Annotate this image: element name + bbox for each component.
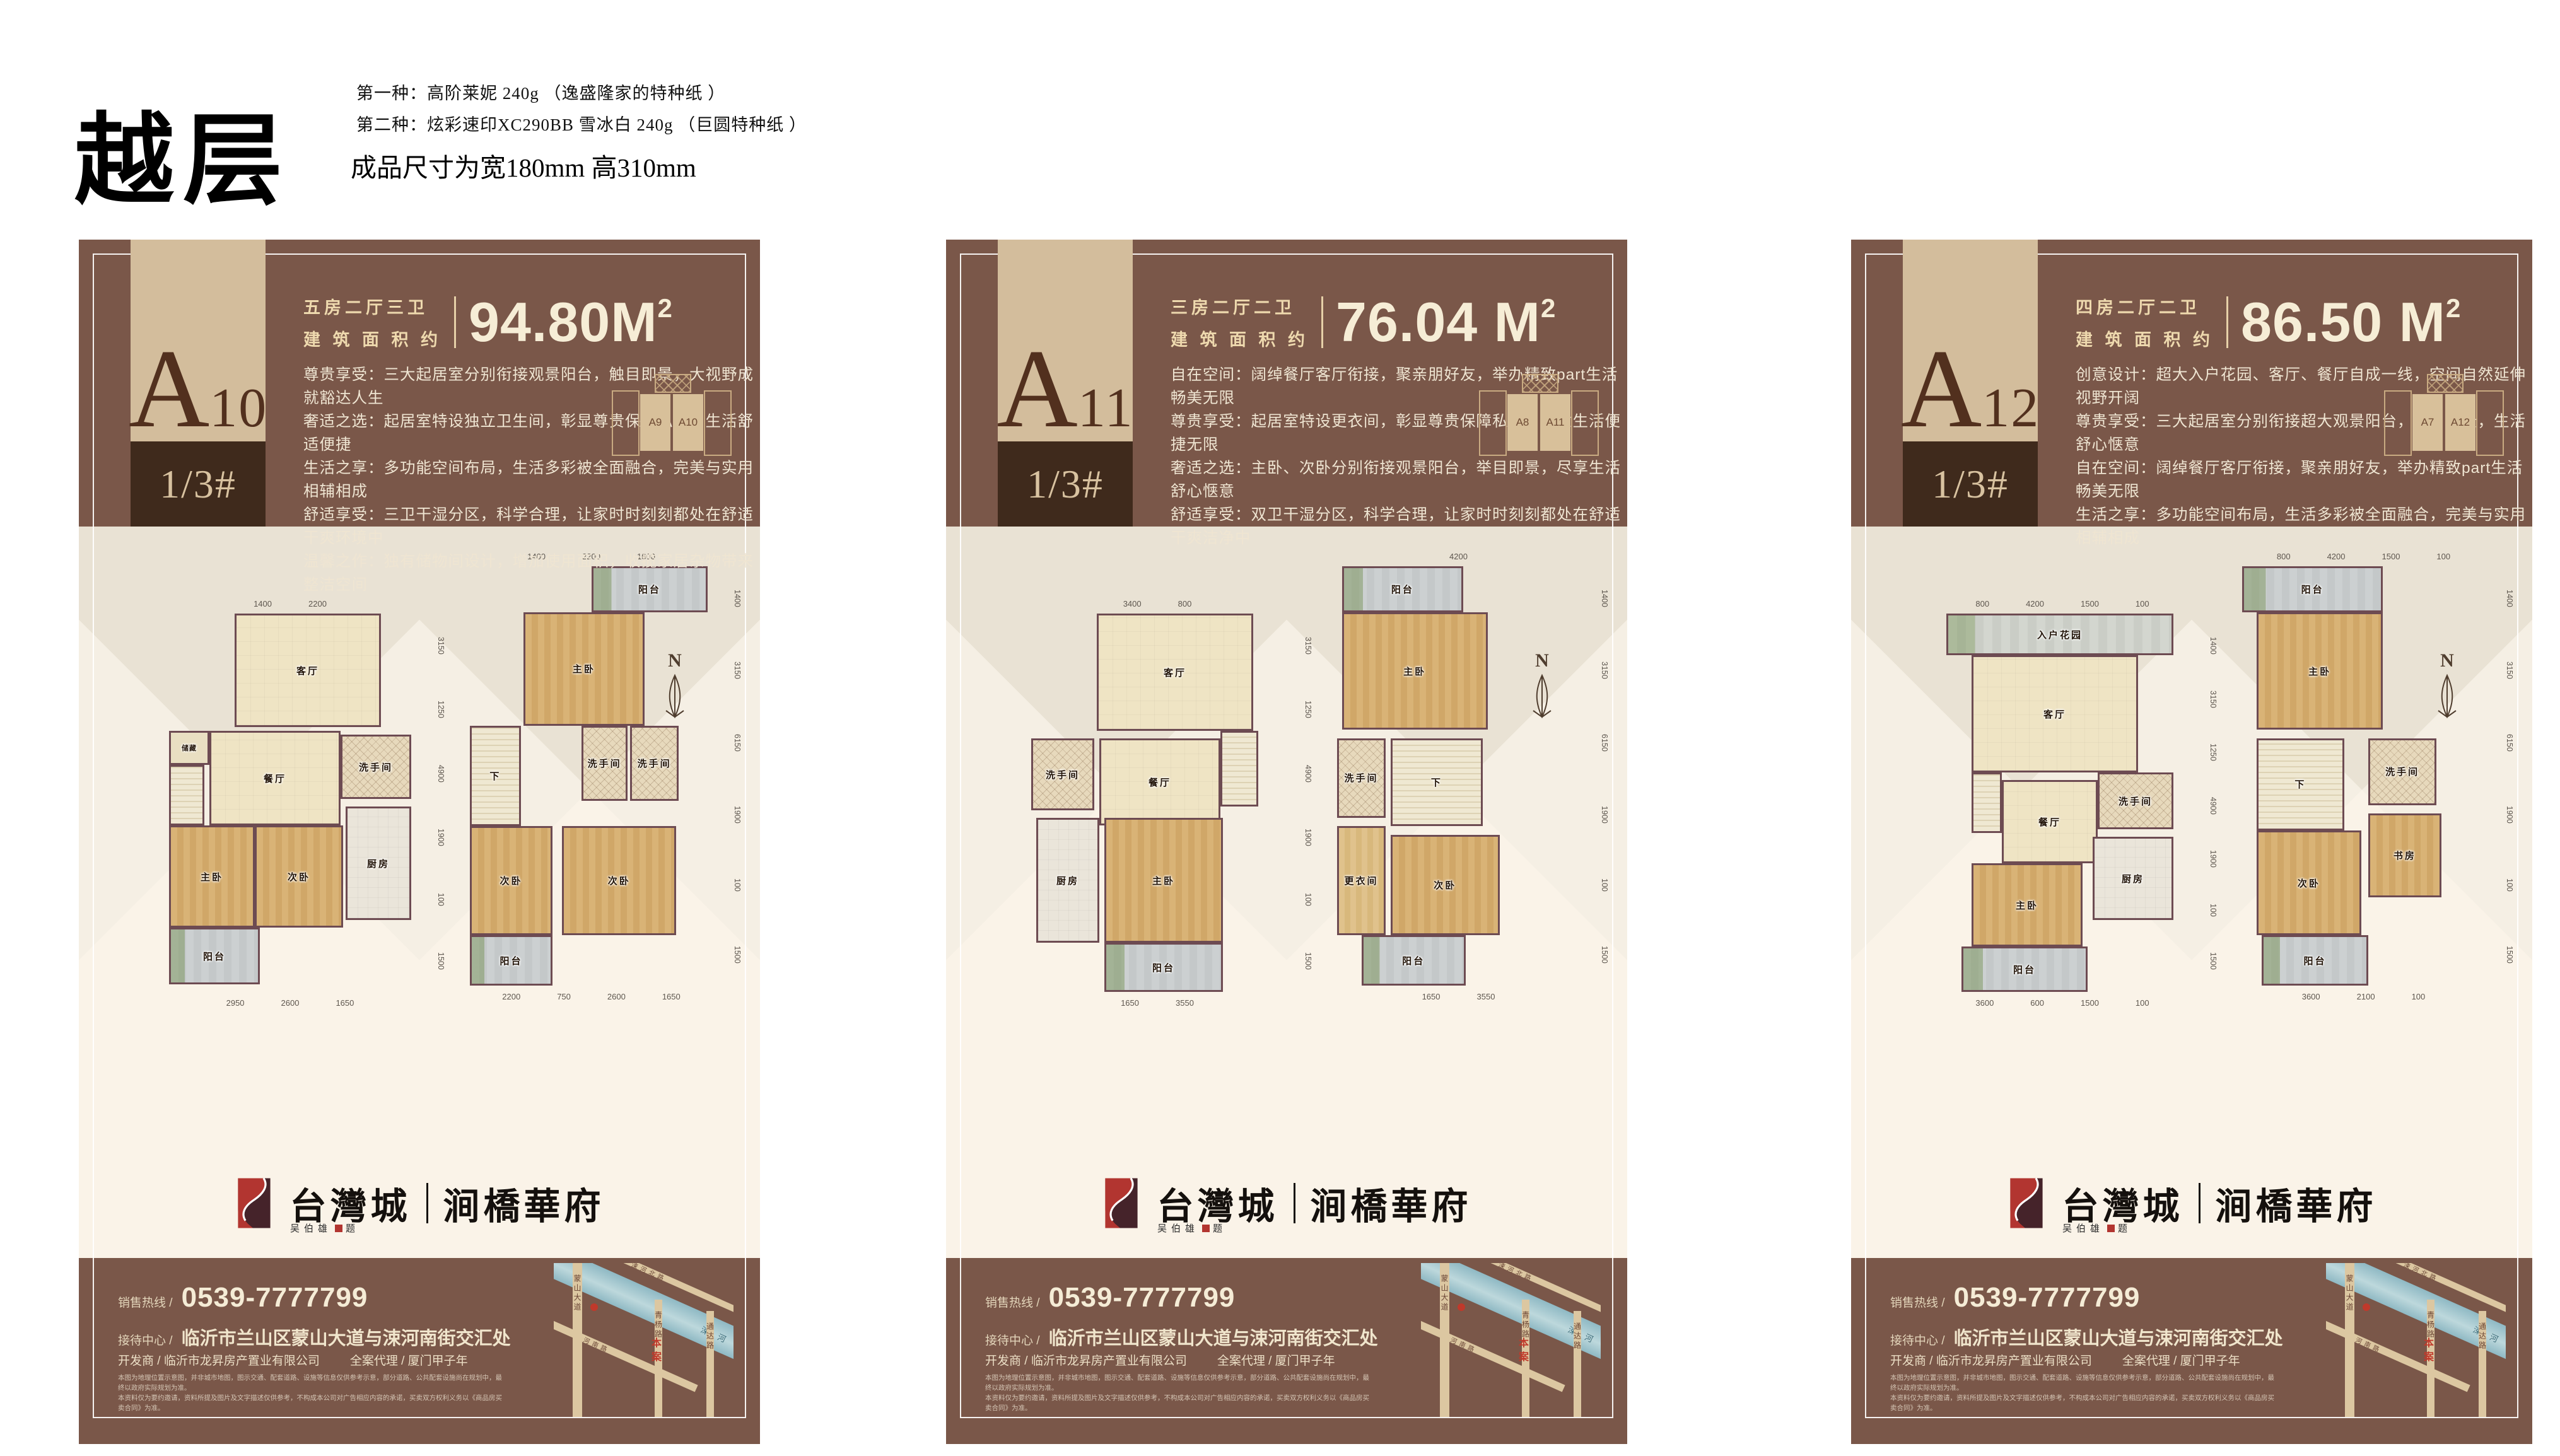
unit-letter: A <box>1901 343 1982 435</box>
dimension-label: 3150 <box>1600 661 1609 679</box>
dimension-label: 3550 <box>1477 992 1495 1001</box>
area-about-label: 建 筑 面 积 约 <box>2076 326 2214 351</box>
room-餐厅: 餐厅 <box>1099 738 1220 825</box>
finished-size-note: 成品尺寸为宽180mm 高310mm <box>351 146 696 184</box>
area-number: 76.04 M <box>1336 291 1541 353</box>
brand-logo-icon <box>1101 1178 1142 1228</box>
area-superscript: 2 <box>658 293 673 323</box>
unit-number: 12 <box>1982 386 2040 435</box>
unit-letter: A <box>129 343 210 435</box>
unit-spec: 三房二厅二卫 建 筑 面 积 约 76.04 M2 <box>1171 294 1556 351</box>
room-主卧: 主卧 <box>523 612 645 726</box>
locator-unit-right: A12 <box>2445 394 2475 451</box>
card-body: N 80042001500100 入户花园客厅洗手间餐厅厨房主卧阳台 14003… <box>1851 527 2532 1258</box>
locator-unit-left: A8 <box>1507 394 1538 451</box>
room-主卧: 主卧 <box>2257 612 2383 730</box>
rooms-type-label: 五房二厅三卫 <box>303 294 441 318</box>
card-footer: 销售热线 / 0539-7777799 接待中心 / 临沂市兰山区蒙山大道与涑河… <box>1851 1258 2532 1444</box>
brand-signature: 吴伯雄题 <box>2062 1221 2132 1235</box>
dimensions-right: 14003150615019001001500 <box>2505 590 2514 964</box>
floor-plan-lower: 3400800 客厅洗手间餐厅厨房主卧阳台 315012504900190010… <box>1031 599 1283 1008</box>
dimensions-bottom: 36006001500100 <box>1936 998 2189 1008</box>
room-次卧: 次卧 <box>255 825 343 928</box>
dimension-label: 1400 <box>254 599 272 609</box>
room-餐厅: 餐厅 <box>2002 780 2098 863</box>
room-阳台: 阳台 <box>1342 566 1464 612</box>
dimension-label: 2600 <box>607 992 626 1001</box>
dimension-label: 1900 <box>2505 806 2514 824</box>
dimensions-bottom: 295026001650 <box>164 998 416 1008</box>
room-stairs <box>1972 772 2002 833</box>
card-body: N 3400800 客厅洗手间餐厅厨房主卧阳台 3150125049001900… <box>946 527 1627 1258</box>
brand-name-right: 涧橋華府 <box>2216 1177 2377 1230</box>
building-wing-left <box>1479 390 1507 456</box>
brand-signature: 吴伯雄题 <box>1157 1221 1227 1235</box>
dimension-label: 100 <box>1600 878 1609 892</box>
room-stairs <box>169 765 204 825</box>
dimension-label: 3150 <box>436 637 445 655</box>
project-marker-label: 本案 <box>2419 1337 2434 1365</box>
building-floor-band: 1/3# <box>1903 441 2038 527</box>
area-value: 94.80M2 <box>469 294 673 350</box>
brand-logo-strip: 台灣城 涧橋華府 吴伯雄题 <box>79 1168 760 1238</box>
reception-address: 临沂市兰山区蒙山大道与涑河南街交汇处 <box>1049 1324 1378 1350</box>
dimension-label: 1650 <box>1422 992 1441 1001</box>
dimensions-right: 31501250490019001001500 <box>1304 637 1312 970</box>
road-label: 青杨路 <box>1521 1311 1531 1339</box>
unit-spec: 四房二厅二卫 建 筑 面 积 约 86.50 M2 <box>2076 294 2461 351</box>
spec-divider <box>2226 296 2228 348</box>
room-洗手间: 洗手间 <box>341 735 411 799</box>
area-value: 76.04 M2 <box>1336 294 1556 350</box>
dimension-label: 2200 <box>502 992 520 1001</box>
brand-logo-strip: 台灣城 涧橋華府 吴伯雄题 <box>946 1168 1627 1238</box>
locator-unit-right: A10 <box>673 394 703 451</box>
dimension-label: 4900 <box>2209 797 2218 815</box>
dimension-label: 6150 <box>2505 734 2514 752</box>
signature-seal-icon <box>1202 1225 1210 1232</box>
location-map: 涑河 涑河北路 涑河南路 蒙山大道 青杨路 通达路 本案 <box>1421 1263 1601 1417</box>
brand-logo-strip: 台灣城 涧橋華府 吴伯雄题 <box>1851 1168 2532 1238</box>
dimension-label: 1900 <box>1600 806 1609 824</box>
room-厨房: 厨房 <box>1036 818 1099 943</box>
floor-plan-rooms: 阳台主卧洗手间下更衣间次卧阳台 <box>1337 566 1580 986</box>
signature-name: 吴伯雄 <box>2062 1223 2104 1234</box>
brand-divider <box>1294 1183 1295 1223</box>
dimensions-top: 4200 <box>1337 552 1580 561</box>
signature-suffix: 题 <box>346 1223 359 1234</box>
dimension-label: 750 <box>557 992 571 1001</box>
elevator-core-icon <box>655 374 691 393</box>
reception-address: 临沂市兰山区蒙山大道与涑河南街交汇处 <box>1954 1324 2283 1350</box>
unit-letter: A <box>997 343 1078 435</box>
dimension-label: 1500 <box>1304 952 1312 970</box>
room-次卧: 次卧 <box>2257 830 2361 935</box>
location-map: 涑河 涑河北路 涑河南路 蒙山大道 青杨路 通达路 本案 <box>2326 1263 2506 1417</box>
dimension-label: 1500 <box>2505 946 2514 964</box>
room-主卧: 主卧 <box>1104 818 1223 943</box>
dimension-label: 1900 <box>2209 850 2218 868</box>
flyer-card: A 12 1/3# 四房二厅二卫 建 筑 面 积 约 86.50 M2 创意设计… <box>1851 240 2532 1444</box>
description-line: 舒适享受：双卫干湿分区，科学合理，让家时时刻刻都处在舒适干爽洁净中 <box>1171 503 1627 550</box>
dimension-label: 100 <box>2505 878 2514 892</box>
road-label: 青杨路 <box>2426 1311 2436 1339</box>
room-主卧: 主卧 <box>1342 612 1488 730</box>
room-阳台: 阳台 <box>470 935 552 986</box>
developer-row: 开发商 / 临沂市龙昇房产置业有限公司 全案代理 / 厦门甲子年 <box>985 1351 1335 1368</box>
brand-logo-icon <box>2006 1178 2047 1228</box>
reception-label: 接待中心 / <box>1890 1331 1945 1348</box>
dimensions-bottom: 36002100100 <box>2242 992 2485 1001</box>
developer-name: 开发商 / 临沂市龙昇房产置业有限公司 <box>118 1351 320 1368</box>
dimension-label: 1400 <box>1600 590 1609 607</box>
rooms-type-label: 四房二厅二卫 <box>2076 294 2214 318</box>
developer-row: 开发商 / 临沂市龙昇房产置业有限公司 全案代理 / 厦门甲子年 <box>118 1351 468 1368</box>
room-阳台: 阳台 <box>1961 946 2088 992</box>
agency-name: 全案代理 / 厦门甲子年 <box>2122 1351 2240 1368</box>
unit-spec-labels: 五房二厅三卫 建 筑 面 积 约 <box>303 294 441 351</box>
floor-plan-upper: 140022001600 阳台主卧下洗手间洗手间次卧次卧阳台 140031506… <box>470 552 713 1001</box>
project-location-dot <box>1458 1303 1465 1311</box>
dimensions-bottom: 220075026001650 <box>470 992 713 1001</box>
dimension-label: 3600 <box>1975 998 1994 1008</box>
room-入户花园: 入户花园 <box>1946 614 2173 655</box>
dimensions-bottom: 16503550 <box>1031 998 1283 1008</box>
room-洗手间: 洗手间 <box>1337 738 1386 818</box>
dimension-label: 600 <box>2030 998 2044 1008</box>
dimensions-top: 80042001500100 <box>1936 599 2189 609</box>
description-line: 舒适享受：三卫干湿分区，科学合理，让家时时刻刻都处在舒适干爽环境中 <box>303 503 760 550</box>
unit-band: A 10 <box>131 240 266 441</box>
dimension-label: 1250 <box>2209 743 2218 761</box>
developer-row: 开发商 / 临沂市龙昇房产置业有限公司 全案代理 / 厦门甲子年 <box>1890 1351 2240 1368</box>
developer-name: 开发商 / 临沂市龙昇房产置业有限公司 <box>985 1351 1187 1368</box>
dimension-label: 100 <box>1304 893 1312 906</box>
dimension-label: 100 <box>2412 992 2426 1001</box>
map-road-tongda: 通达路 <box>706 1311 714 1417</box>
room-洗手间: 洗手间 <box>2368 738 2436 805</box>
map-road-mengshan: 蒙山大道 <box>2345 1263 2354 1417</box>
sales-hotline-row: 销售热线 / 0539-7777799 <box>985 1282 1235 1313</box>
dimension-label: 1650 <box>1121 998 1139 1008</box>
map-road-mengshan: 蒙山大道 <box>573 1263 582 1417</box>
disclaimer: 本图为地理位置示意图，并非城市地图，图示交通、配套道路、设施等信息仅供参考示意，… <box>1890 1373 2275 1413</box>
room-书房: 书房 <box>2368 813 2441 897</box>
dimension-label: 2100 <box>2357 992 2375 1001</box>
dimension-label: 4200 <box>2327 552 2346 561</box>
unit-label: A 12 <box>1901 343 2040 441</box>
reception-row: 接待中心 / 临沂市兰山区蒙山大道与涑河南街交汇处 <box>1890 1324 2283 1350</box>
road-label: 涑河北路 <box>2402 1263 2441 1283</box>
elevator-core-icon <box>2427 374 2464 393</box>
room-阳台: 阳台 <box>2242 566 2383 612</box>
building-wing-left <box>2384 390 2412 456</box>
room-阳台: 阳台 <box>169 928 260 984</box>
disclaimer-line-1: 本图为地理位置示意图，并非城市地图，图示交通、配套道路、设施等信息仅供参考示意，… <box>1890 1373 2275 1393</box>
building-locator-diagram: A7 A12 <box>2384 374 2504 469</box>
dimension-label: 3550 <box>1176 998 1194 1008</box>
dimensions-right: 14003150615019001001500 <box>733 590 742 964</box>
room-厨房: 厨房 <box>346 807 411 920</box>
agency-name: 全案代理 / 厦门甲子年 <box>1217 1351 1335 1368</box>
building-wing-right <box>2476 390 2504 456</box>
unit-band: A 11 <box>998 240 1133 441</box>
floor-plan-upper: 80042001500100 阳台主卧下洗手间书房次卧阳台 1400315061… <box>2242 552 2485 1001</box>
dimension-label: 3150 <box>2505 661 2514 679</box>
dimension-label: 2200 <box>308 599 327 609</box>
brand-logo-icon <box>234 1178 274 1228</box>
hotline-number: 0539-7777799 <box>1954 1282 2141 1313</box>
flyer-card: A 10 1/3# 五房二厅三卫 建 筑 面 积 约 94.80M2 尊贵享受：… <box>79 240 760 1444</box>
reception-address: 临沂市兰山区蒙山大道与涑河南街交汇处 <box>182 1324 511 1350</box>
dimension-label: 1500 <box>2081 599 2099 609</box>
card-footer: 销售热线 / 0539-7777799 接待中心 / 临沂市兰山区蒙山大道与涑河… <box>79 1258 760 1444</box>
floor-plan-lower: 14002200 客厅储藏餐厅洗手间厨房主卧次卧阳台 3150125049001… <box>164 599 416 1008</box>
dimension-label: 2950 <box>226 998 245 1008</box>
dimensions-top: 14002200 <box>164 599 416 609</box>
brand-name-right: 涧橋華府 <box>443 1177 605 1230</box>
hotline-label: 销售热线 / <box>985 1293 1040 1310</box>
room-下: 下 <box>1391 738 1483 827</box>
room-洗手间: 洗手间 <box>582 726 628 801</box>
room-阳台: 阳台 <box>1104 943 1223 992</box>
card-footer: 销售热线 / 0539-7777799 接待中心 / 临沂市兰山区蒙山大道与涑河… <box>946 1258 1627 1444</box>
disclaimer-line-1: 本图为地理位置示意图，并非城市地图，图示交通、配套道路、设施等信息仅供参考示意，… <box>985 1373 1370 1393</box>
dimensions-bottom: 16503550 <box>1337 992 1580 1001</box>
road-label: 通达路 <box>705 1322 716 1351</box>
map-road-tongda: 通达路 <box>1574 1311 1581 1417</box>
building-wing-right <box>704 390 732 456</box>
road-label: 蒙山大道 <box>572 1274 583 1312</box>
room-洗手间: 洗手间 <box>1031 738 1094 810</box>
signature-name: 吴伯雄 <box>1157 1223 1199 1234</box>
dimensions-top: 80042001500100 <box>2242 552 2485 561</box>
reception-label: 接待中心 / <box>985 1331 1040 1348</box>
floor-plan-lower: 80042001500100 入户花园客厅洗手间餐厅厨房主卧阳台 1400315… <box>1936 599 2189 1008</box>
unit-band: A 12 <box>1903 240 2038 441</box>
area-superscript: 2 <box>1541 293 1556 323</box>
dimension-label: 1400 <box>2505 590 2514 607</box>
floor-plan-rooms: 客厅洗手间餐厅厨房主卧阳台 <box>1031 614 1283 992</box>
room-次卧: 次卧 <box>470 826 552 935</box>
room-次卧: 次卧 <box>1391 835 1500 936</box>
dimensions-right: 31501250490019001001500 <box>436 637 445 970</box>
signature-seal-icon <box>2107 1225 2115 1232</box>
disclaimer: 本图为地理位置示意图，并非城市地图，图示交通、配套道路、设施等信息仅供参考示意，… <box>985 1373 1370 1413</box>
disclaimer: 本图为地理位置示意图，并非城市地图，图示交通、配套道路、设施等信息仅供参考示意，… <box>118 1373 503 1413</box>
map-road-tongda: 通达路 <box>2479 1311 2486 1417</box>
floor-plan-rooms: 入户花园客厅洗手间餐厅厨房主卧阳台 <box>1936 614 2189 992</box>
dimension-label: 6150 <box>1600 734 1609 752</box>
description-line: 生活之享：多功能空间布局，生活多彩被全面融合，完美与实用相辅相成 <box>2076 503 2532 550</box>
locator-unit-left: A7 <box>2412 394 2443 451</box>
area-number: 86.50 M <box>2241 291 2446 353</box>
road-label: 通达路 <box>1572 1322 1583 1351</box>
road-label: 涑河北路 <box>1497 1263 1536 1283</box>
reception-row: 接待中心 / 临沂市兰山区蒙山大道与涑河南街交汇处 <box>118 1324 511 1350</box>
spec-divider <box>454 296 456 348</box>
dimension-label: 100 <box>2209 904 2218 917</box>
brand-divider <box>426 1183 428 1223</box>
area-value: 86.50 M2 <box>2241 294 2461 350</box>
reception-label: 接待中心 / <box>118 1331 173 1348</box>
dimension-label: 1250 <box>1304 701 1312 718</box>
dimension-label: 100 <box>436 893 445 906</box>
room-餐厅: 餐厅 <box>209 731 341 825</box>
map-road-mengshan: 蒙山大道 <box>1440 1263 1449 1417</box>
room-洗手间: 洗手间 <box>630 726 679 801</box>
hotline-number: 0539-7777799 <box>1049 1282 1236 1313</box>
road-label: 涑河北路 <box>630 1263 669 1283</box>
dimension-label: 1500 <box>2081 998 2099 1008</box>
page-title: 越层 <box>74 112 291 212</box>
dimension-label: 100 <box>2136 998 2149 1008</box>
unit-label: A 10 <box>129 343 268 441</box>
paper-spec-line-2: 第二种：炫彩速印XC290BB 雪冰白 240g （巨圆特种纸 ） <box>356 111 807 136</box>
dimension-label: 100 <box>2136 599 2149 609</box>
dimensions-right: 14003150615019001001500 <box>1600 590 1609 964</box>
area-number: 94.80M <box>469 291 658 353</box>
rooms-type-label: 三房二厅二卫 <box>1171 294 1309 318</box>
unit-number: 10 <box>209 386 267 435</box>
floor-plan-rooms: 阳台主卧下洗手间洗手间次卧次卧阳台 <box>470 566 713 986</box>
dimension-label: 4200 <box>2026 599 2044 609</box>
area-about-label: 建 筑 面 积 约 <box>1171 326 1309 351</box>
signature-name: 吴伯雄 <box>290 1223 332 1234</box>
room-厨房: 厨房 <box>2093 837 2173 920</box>
room-次卧: 次卧 <box>562 826 676 935</box>
disclaimer-line-2: 本资料仅为要约邀请，资料所提及图片及文字描述仅供参考，不构成本公司对广告相应内容… <box>1890 1393 2275 1413</box>
disclaimer-line-1: 本图为地理位置示意图，并非城市地图，图示交通、配套道路、设施等信息仅供参考示意，… <box>118 1373 503 1393</box>
dimension-label: 100 <box>733 878 742 892</box>
dimension-label: 1500 <box>733 946 742 964</box>
dimension-label: 1650 <box>336 998 354 1008</box>
floor-plan-rooms: 阳台主卧下洗手间书房次卧阳台 <box>2242 566 2485 986</box>
floor-plan-rooms: 客厅储藏餐厅洗手间厨房主卧次卧阳台 <box>164 614 416 992</box>
dimension-label: 1900 <box>733 806 742 824</box>
flyer-card: A 11 1/3# 三房二厅二卫 建 筑 面 积 约 76.04 M2 自在空间… <box>946 240 1627 1444</box>
dimension-label: 1650 <box>662 992 681 1001</box>
agency-name: 全案代理 / 厦门甲子年 <box>350 1351 468 1368</box>
dimension-label: 100 <box>2436 552 2450 561</box>
description-line: 温馨之作：独有储物间设计，增加使用面积，收揽家居杂物带来整洁空间 <box>303 550 760 597</box>
dimension-label: 4900 <box>436 765 445 783</box>
road-label: 通达路 <box>2477 1322 2488 1351</box>
room-储藏: 储藏 <box>169 731 209 765</box>
dimension-label: 800 <box>1178 599 1192 609</box>
signature-seal-icon <box>335 1225 342 1232</box>
dimensions-right: 140031501250490019001001500 <box>2209 637 2218 970</box>
building-wing-right <box>1571 390 1599 456</box>
card-body: N 14002200 客厅储藏餐厅洗手间厨房主卧次卧阳台 31501250490… <box>79 527 760 1258</box>
building-locator-diagram: A8 A11 <box>1479 374 1599 469</box>
dimension-label: 1900 <box>436 829 445 846</box>
dimension-label: 1250 <box>436 701 445 718</box>
hotline-label: 销售热线 / <box>1890 1293 1945 1310</box>
project-marker-label: 本案 <box>647 1337 662 1365</box>
area-about-label: 建 筑 面 积 约 <box>303 326 441 351</box>
dimension-label: 3150 <box>1304 637 1312 655</box>
project-location-dot <box>2363 1303 2370 1311</box>
hotline-label: 销售热线 / <box>118 1293 173 1310</box>
road-label: 蒙山大道 <box>2344 1274 2355 1312</box>
locator-unit-left: A9 <box>640 394 670 451</box>
dimension-label: 1500 <box>2382 552 2400 561</box>
dimension-label: 2600 <box>281 998 300 1008</box>
sales-hotline-row: 销售热线 / 0539-7777799 <box>118 1282 368 1313</box>
building-wing-left <box>612 390 640 456</box>
room-主卧: 主卧 <box>1972 863 2083 946</box>
dimension-label: 1500 <box>436 952 445 970</box>
disclaimer-line-2: 本资料仅为要约邀请，资料所提及图片及文字描述仅供参考，不构成本公司对广告相应内容… <box>118 1393 503 1413</box>
dimension-label: 4200 <box>1449 552 1468 561</box>
unit-spec-labels: 三房二厅二卫 建 筑 面 积 约 <box>1171 294 1309 351</box>
building-floor-band: 1/3# <box>998 441 1133 527</box>
project-marker-label: 本案 <box>1514 1337 1529 1365</box>
dimension-label: 3600 <box>2302 992 2320 1001</box>
dimension-label: 4900 <box>1304 765 1312 783</box>
spec-divider <box>1321 296 1323 348</box>
brand-name-right: 涧橋華府 <box>1311 1177 1472 1230</box>
dimension-label: 1900 <box>1304 829 1312 846</box>
dimension-label: 3150 <box>733 661 742 679</box>
building-floor-band: 1/3# <box>131 441 266 527</box>
developer-name: 开发商 / 临沂市龙昇房产置业有限公司 <box>1890 1351 2092 1368</box>
room-主卧: 主卧 <box>169 825 255 928</box>
brand-divider <box>2199 1183 2201 1223</box>
dimension-label: 6150 <box>733 734 742 752</box>
signature-suffix: 题 <box>2118 1223 2132 1234</box>
room-更衣间: 更衣间 <box>1337 826 1386 935</box>
brand-signature: 吴伯雄题 <box>290 1221 359 1235</box>
disclaimer-line-2: 本资料仅为要约邀请，资料所提及图片及文字描述仅供参考，不构成本公司对广告相应内容… <box>985 1393 1370 1413</box>
room-阳台: 阳台 <box>2262 935 2368 986</box>
signature-suffix: 题 <box>1213 1223 1227 1234</box>
room-阳台: 阳台 <box>1362 935 1466 986</box>
unit-label: A 11 <box>997 343 1133 441</box>
room-下: 下 <box>470 726 521 827</box>
dimension-label: 1500 <box>2209 952 2218 970</box>
location-map: 涑河 涑河北路 涑河南路 蒙山大道 青杨路 通达路 本案 <box>554 1263 734 1417</box>
dimension-label: 1500 <box>1600 946 1609 964</box>
reception-row: 接待中心 / 临沂市兰山区蒙山大道与涑河南街交汇处 <box>985 1324 1378 1350</box>
paper-spec-line-1: 第一种：高阶莱妮 240g （逸盛隆家的特种纸 ） <box>356 79 725 104</box>
unit-number: 11 <box>1078 386 1134 435</box>
room-下: 下 <box>2257 738 2344 830</box>
hotline-number: 0539-7777799 <box>182 1282 368 1313</box>
dimension-label: 3150 <box>2209 690 2218 708</box>
locator-unit-right: A11 <box>1540 394 1570 451</box>
unit-spec-labels: 四房二厅二卫 建 筑 面 积 约 <box>2076 294 2214 351</box>
road-label: 蒙山大道 <box>1439 1274 1450 1312</box>
room-客厅: 客厅 <box>1097 614 1253 731</box>
dimension-label: 1400 <box>2209 637 2218 655</box>
elevator-core-icon <box>1522 374 1558 393</box>
sales-hotline-row: 销售热线 / 0539-7777799 <box>1890 1282 2140 1313</box>
room-洗手间: 洗手间 <box>2098 772 2173 829</box>
dimension-label: 800 <box>1975 599 1989 609</box>
room-客厅: 客厅 <box>1972 655 2138 772</box>
dimension-label: 800 <box>2277 552 2291 561</box>
road-label: 青杨路 <box>653 1311 664 1339</box>
building-locator-diagram: A9 A10 <box>612 374 732 469</box>
floor-plan-upper: 4200 阳台主卧洗手间下更衣间次卧阳台 1400315061501900100… <box>1337 552 1580 1001</box>
dimensions-top: 3400800 <box>1031 599 1283 609</box>
unit-spec: 五房二厅三卫 建 筑 面 积 约 94.80M2 <box>303 294 673 351</box>
dimension-label: 3400 <box>1123 599 1142 609</box>
project-location-dot <box>590 1303 598 1311</box>
room-客厅: 客厅 <box>235 614 381 727</box>
